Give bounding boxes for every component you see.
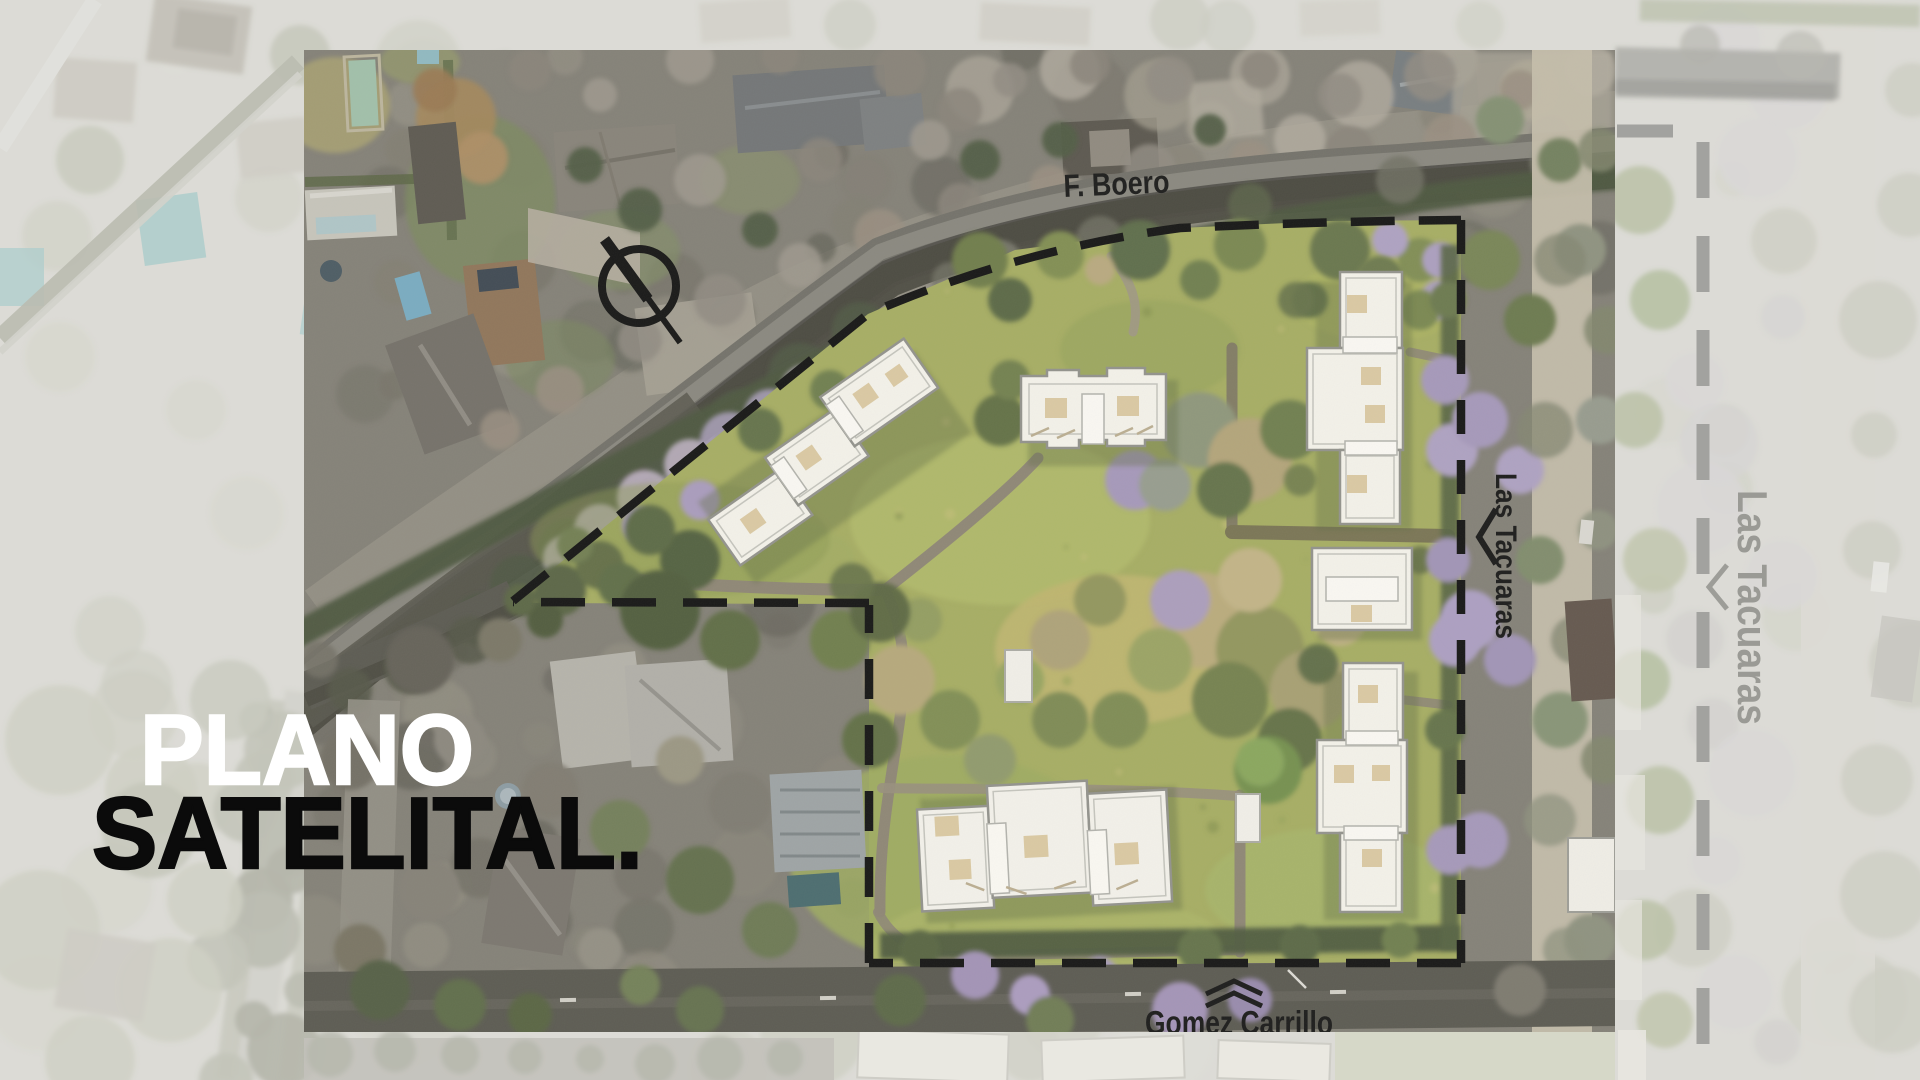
svg-text:SATELITAL.: SATELITAL. <box>92 778 643 890</box>
